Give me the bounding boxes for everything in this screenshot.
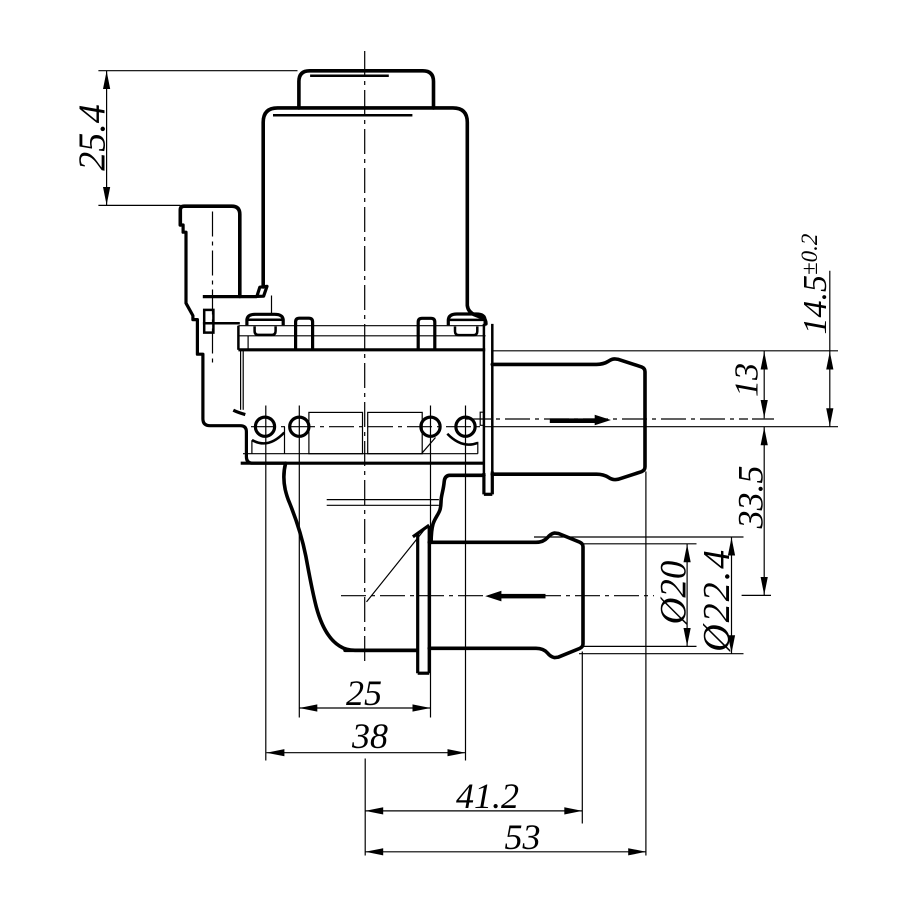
svg-text:13: 13: [729, 363, 766, 397]
svg-text:38: 38: [351, 716, 388, 756]
svg-text:41.2: 41.2: [456, 776, 519, 816]
svg-text:33.5: 33.5: [731, 466, 771, 530]
svg-text:53: 53: [505, 817, 541, 857]
svg-text:25: 25: [346, 673, 382, 713]
svg-text:25.4: 25.4: [72, 104, 114, 171]
svg-text:Ø20: Ø20: [654, 560, 695, 625]
svg-text:Ø22.4: Ø22.4: [696, 548, 738, 653]
